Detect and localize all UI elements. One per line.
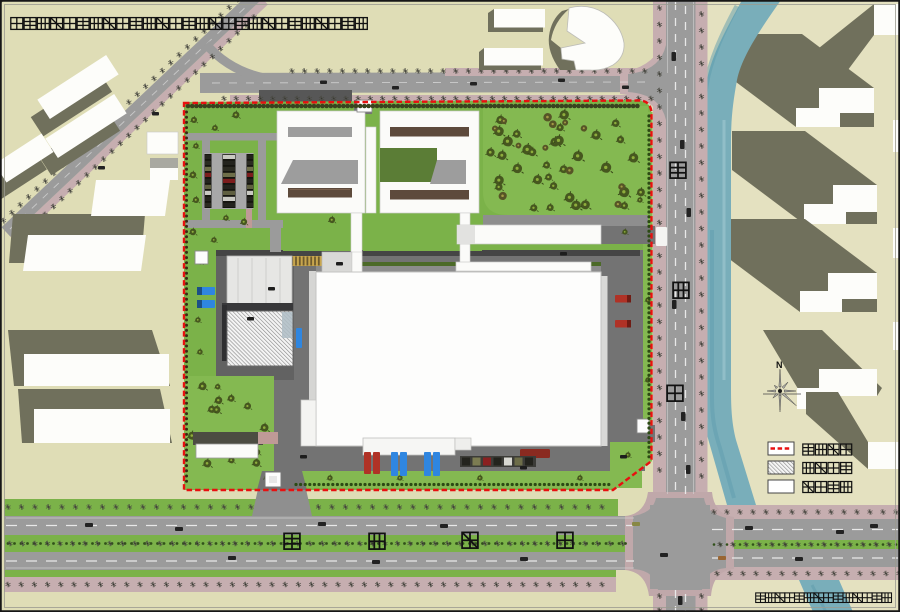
svg-text:N: N	[776, 360, 783, 370]
